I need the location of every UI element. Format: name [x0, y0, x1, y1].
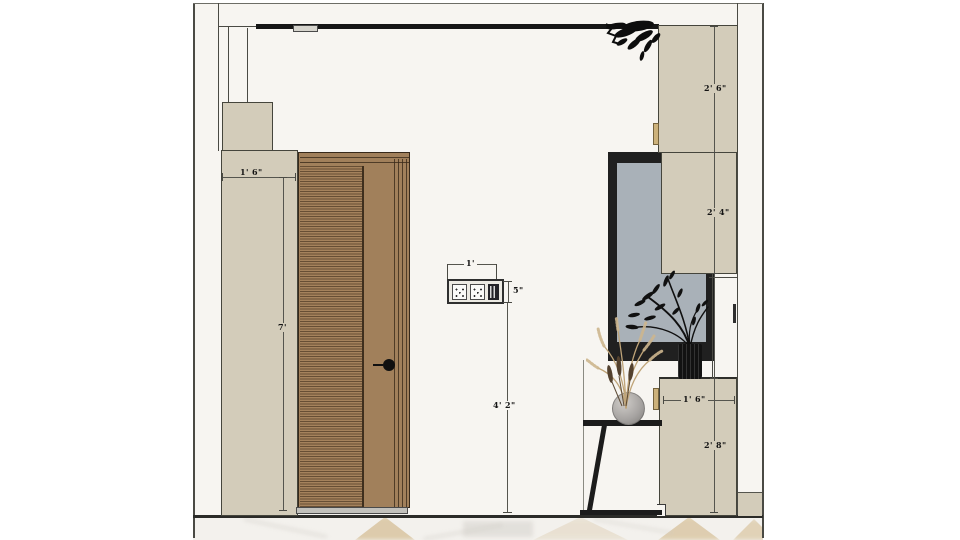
- dim-label-base-height: 2' 8": [702, 441, 729, 450]
- door-top-reveal-line: [300, 157, 409, 158]
- door-threshold: [296, 507, 408, 514]
- door: [298, 152, 410, 508]
- dim-tick: [710, 512, 718, 513]
- side-wall-patch: [738, 492, 762, 516]
- ceiling-line: [218, 26, 258, 27]
- dim-label-base-width: 1' 6": [681, 395, 708, 404]
- socket-module: [452, 284, 467, 300]
- black-vase: [678, 344, 702, 379]
- left-wall-panel: [221, 150, 298, 516]
- marble-vein: [733, 519, 763, 540]
- dim-label-upper-cabinet: 2' 6": [702, 84, 729, 93]
- left-upper-wall-box: [222, 102, 273, 151]
- door-jamb-reveal-line: [406, 159, 407, 507]
- socket-module: [470, 284, 485, 300]
- cabinet-handle: [653, 123, 659, 145]
- wall-stud-line: [247, 28, 248, 103]
- frame-line-left: [193, 3, 195, 538]
- dim-tick: [279, 177, 287, 178]
- dim-tick: [710, 152, 718, 153]
- door-knob: [383, 359, 395, 371]
- power-outlet-panel: [447, 279, 504, 304]
- dim-line-door-height: [283, 177, 284, 511]
- ceiling-plant: [586, 16, 664, 66]
- door-knob-stem: [373, 364, 383, 366]
- dim-tick: [279, 510, 287, 511]
- switch-module: [488, 284, 499, 300]
- door-top-reveal-line: [300, 162, 409, 163]
- frame-line-right: [762, 3, 764, 538]
- tall-unit-handle: [733, 304, 736, 323]
- dim-label-outlet-height: 5": [511, 286, 526, 295]
- console-table-foot: [580, 510, 662, 515]
- dim-label-left-panel-width: 1' 6": [238, 168, 265, 177]
- marble-vein: [244, 518, 327, 537]
- dim-tick: [710, 378, 718, 379]
- dim-label-door-height: 7': [276, 323, 289, 332]
- pampas-stems: [586, 316, 670, 428]
- dim-tick: [503, 281, 512, 282]
- ceiling-light-fixture: [293, 25, 318, 32]
- niche-wall-line: [583, 360, 584, 515]
- door-fluted-panel: [300, 166, 362, 507]
- dim-tick: [295, 173, 296, 181]
- dim-tick: [222, 173, 223, 181]
- dim-label-outlet-mount: 4' 2": [491, 401, 518, 410]
- door-panel-divider: [362, 166, 364, 507]
- dim-tick: [503, 512, 512, 513]
- dim-extension: [447, 264, 448, 279]
- marble-floor: [193, 517, 763, 540]
- door-jamb-reveal-line: [394, 159, 395, 507]
- elevation-drawing-canvas: 1' 6" 7' 1' 5" 4' 2": [0, 0, 960, 540]
- dim-line-outlet-height: [508, 281, 509, 303]
- dim-label-outlet-width: 1': [464, 259, 477, 268]
- marble-vein: [355, 517, 415, 540]
- frame-line-top: [193, 3, 763, 4]
- dim-extension: [496, 264, 497, 279]
- door-jamb-reveal-line: [402, 159, 403, 507]
- dim-label-mid-cabinet: 2' 4": [705, 208, 732, 217]
- door-jamb-reveal-line: [398, 159, 399, 507]
- marble-vein: [658, 517, 720, 540]
- dim-tick: [734, 396, 735, 404]
- shelf-divider-line: [712, 274, 713, 378]
- marble-vein: [533, 517, 628, 540]
- dim-tick: [710, 26, 718, 27]
- wall-stud-line: [228, 27, 229, 103]
